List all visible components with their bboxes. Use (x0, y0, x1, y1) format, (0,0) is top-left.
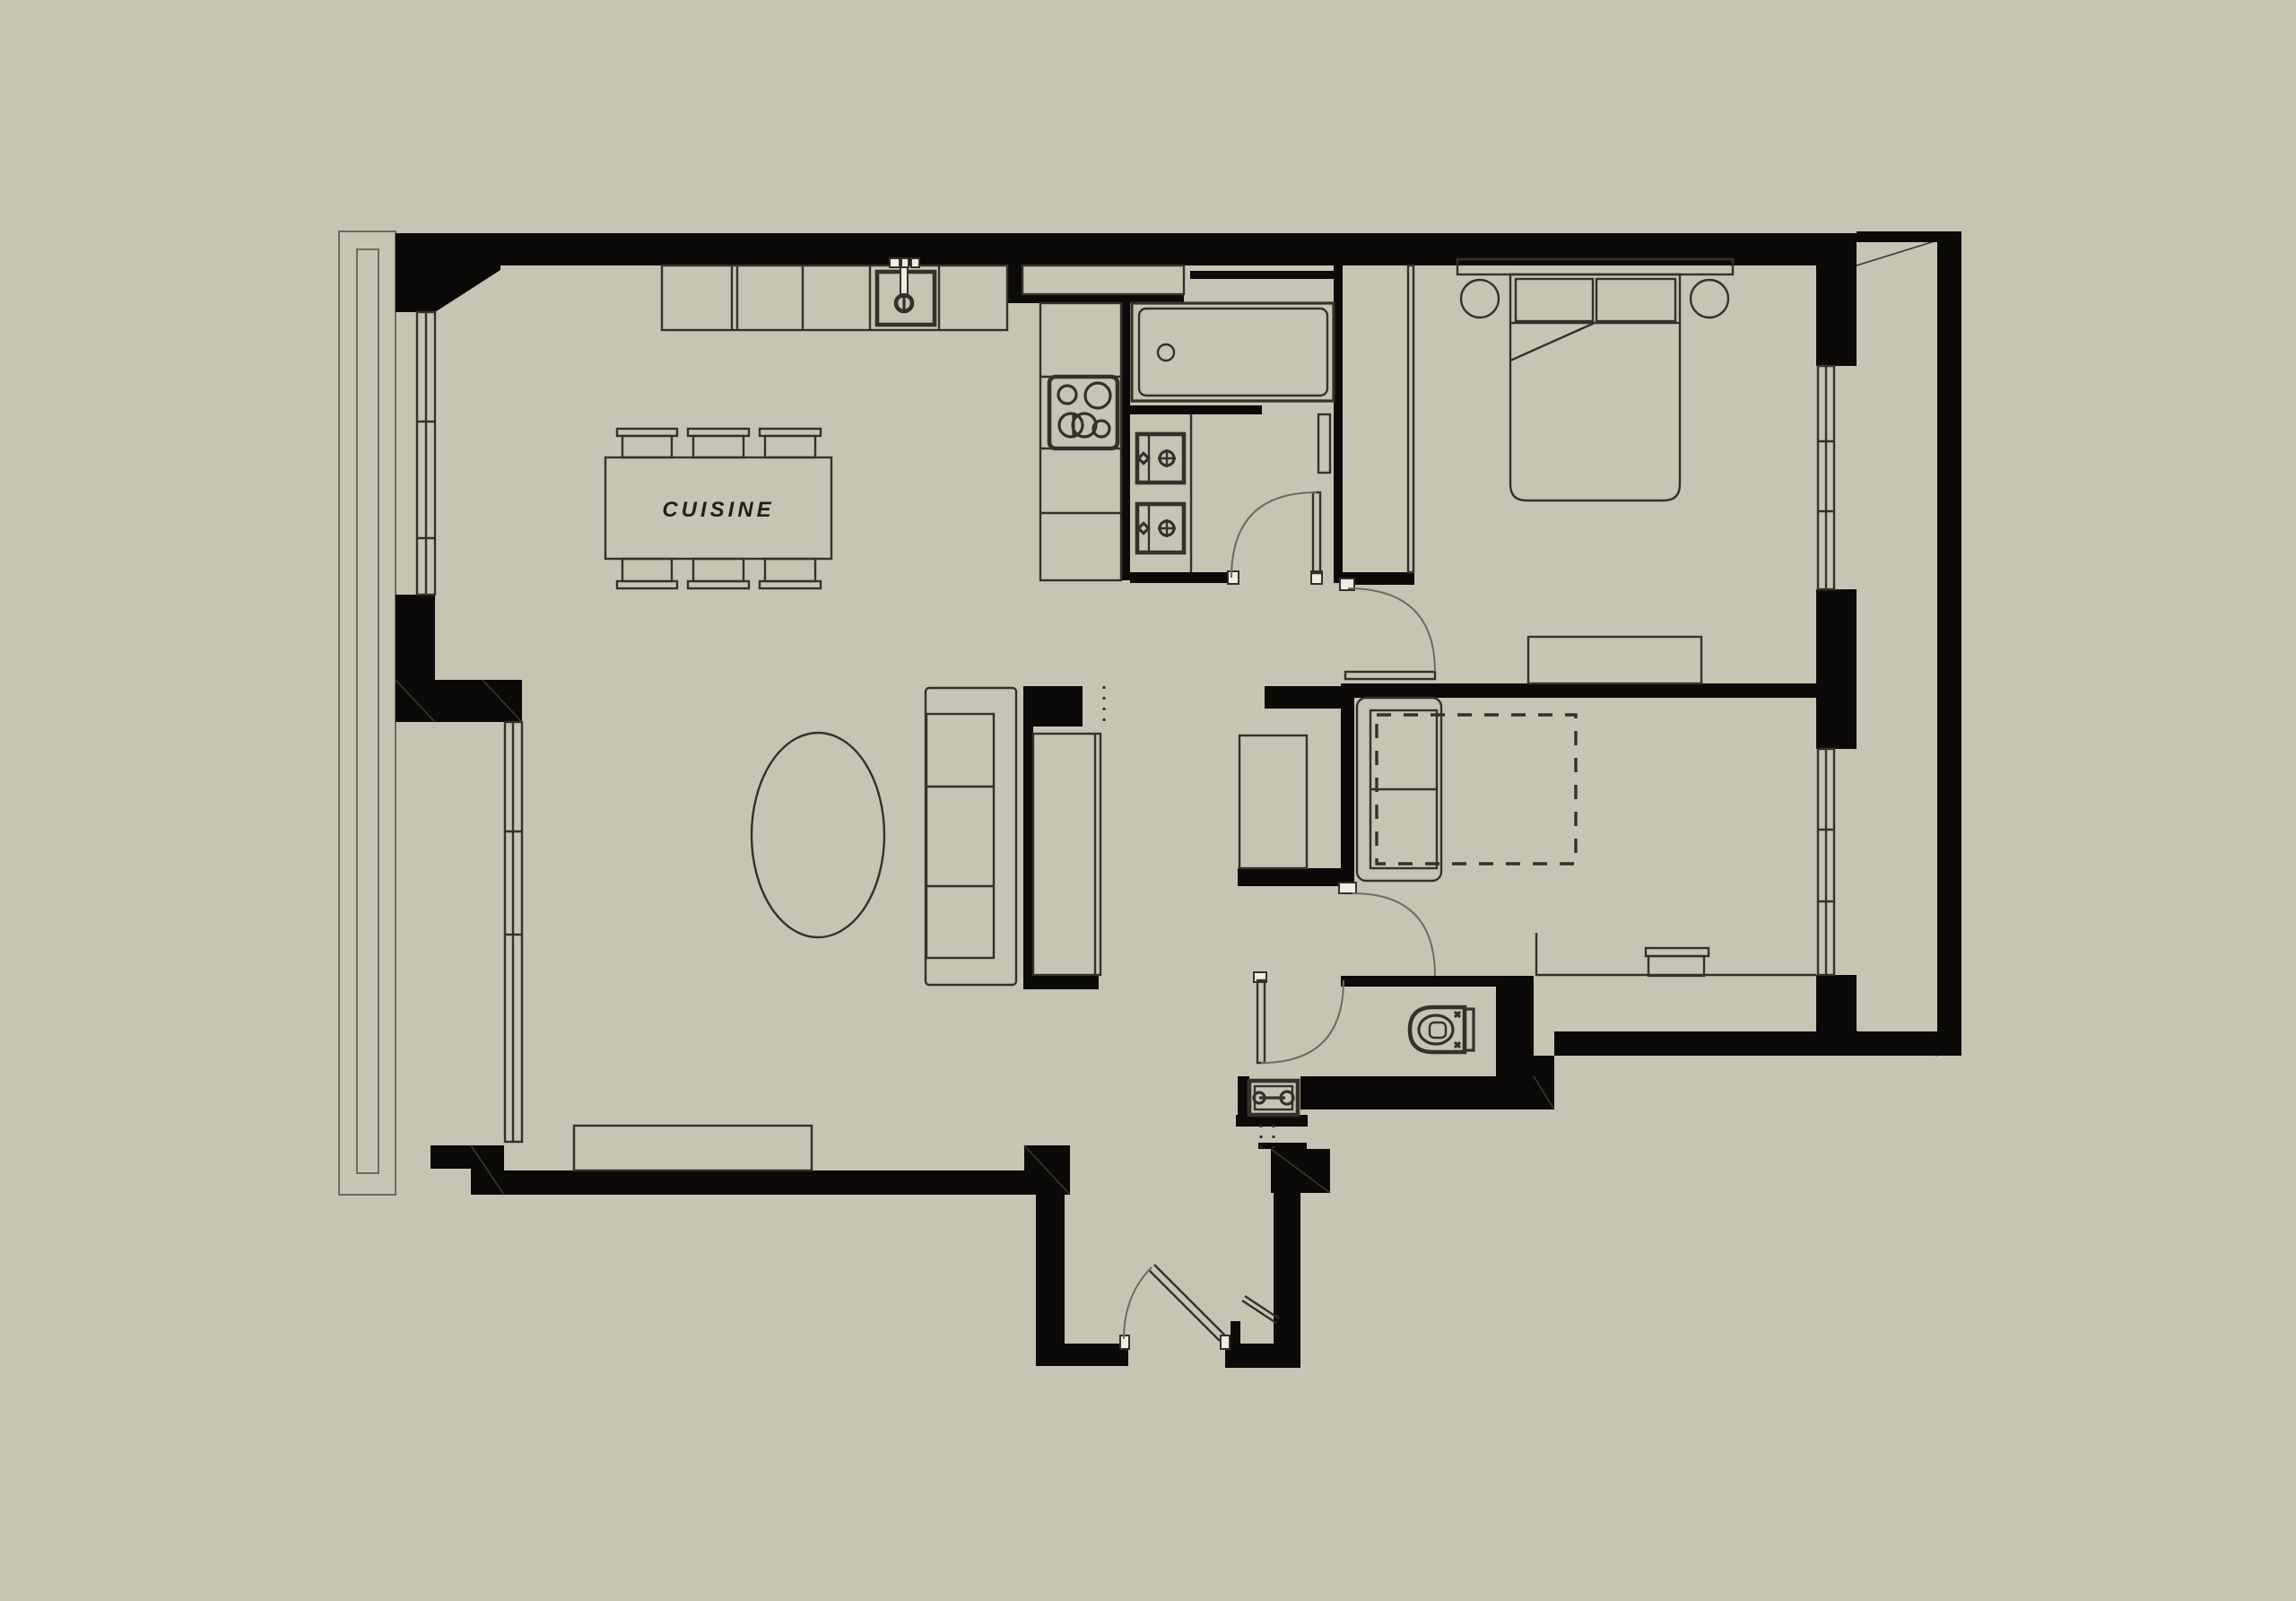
floor-plan-drawing: CUISINE (0, 0, 2296, 1601)
kitchen-label: CUISINE (662, 498, 774, 522)
floor-plan-page: CUISINE (0, 0, 2296, 1601)
